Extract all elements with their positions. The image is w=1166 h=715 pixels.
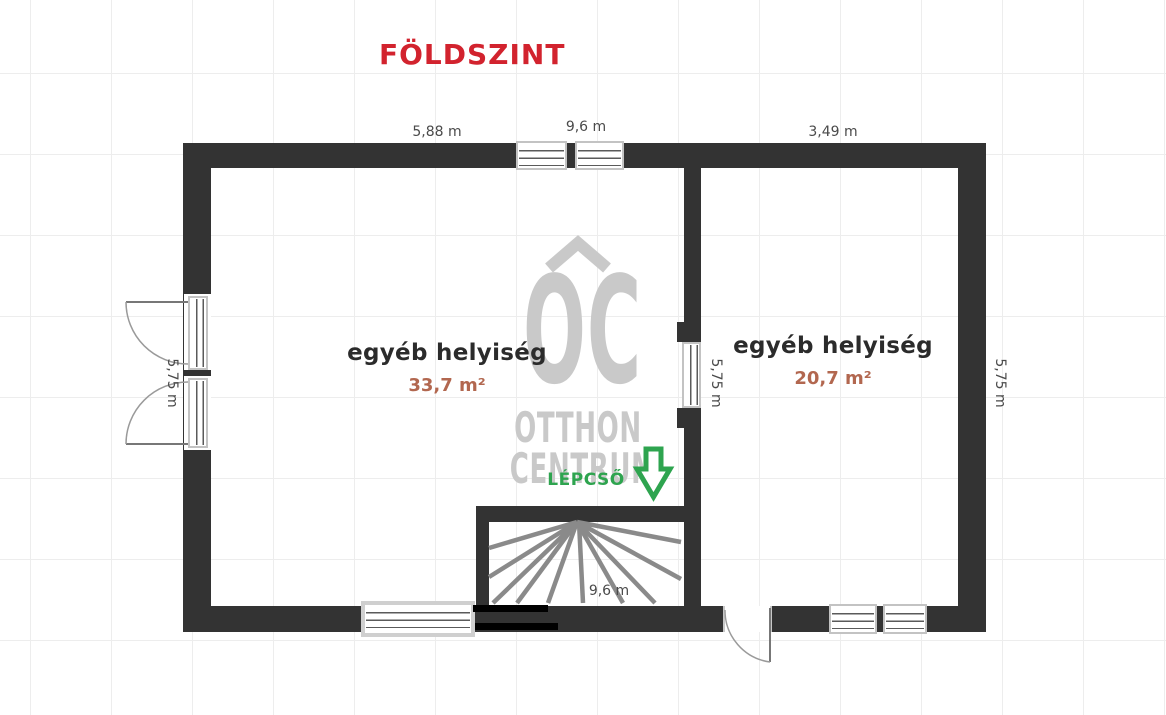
room-label-left: egyéb helyiség 33,7 m²: [337, 340, 557, 396]
dimension-middle-height: 5,75 m: [708, 348, 724, 418]
bottom-door-opening: [723, 606, 772, 632]
middle-window-jamb-bottom: [677, 408, 701, 428]
dimension-right-height: 5,75 m: [992, 348, 1008, 418]
window-top-2: [575, 141, 624, 170]
page-title: FÖLDSZINT: [379, 38, 565, 71]
room-name: egyéb helyiség: [337, 340, 557, 366]
dimension-left-height: 5,75 m: [164, 348, 180, 418]
stairs-label: LÉPCSŐ: [546, 470, 626, 490]
window-pane: [191, 299, 205, 367]
dimension-stairs-width: 9,6 m: [569, 583, 649, 599]
left-door-sidelite-1: [188, 296, 208, 370]
window-bottom-left: [361, 601, 475, 637]
dimension-top-left: 5,88 m: [397, 124, 477, 140]
window-middle-wall: [682, 342, 701, 408]
window-bottom-right-1: [829, 604, 877, 634]
stair-threshold-bar-2: [475, 623, 558, 630]
stairs-wall-left: [476, 506, 489, 606]
floor-plan-canvas: FÖLDSZINT OC OTTHON CENTRUM: [0, 0, 1166, 715]
middle-window-jamb-top: [677, 322, 701, 342]
room-area: 33,7 m²: [337, 375, 557, 396]
stair-threshold-bar-1: [473, 605, 548, 612]
window-pane: [366, 606, 470, 632]
window-bottom-right-2: [883, 604, 927, 634]
window-pane: [832, 607, 874, 631]
stairs-wall-top: [476, 506, 684, 522]
room-area: 20,7 m²: [723, 368, 943, 389]
window-pane: [685, 345, 698, 405]
left-door-mullion: [184, 370, 211, 376]
window-pane: [191, 381, 205, 445]
window-pane: [886, 607, 924, 631]
window-top-1: [516, 141, 567, 170]
room-name: egyéb helyiség: [723, 333, 943, 359]
wall-right: [958, 143, 986, 632]
room-label-right: egyéb helyiség 20,7 m²: [723, 333, 943, 389]
window-pane: [578, 144, 621, 167]
window-pane: [519, 144, 564, 167]
left-door-sidelite-2: [188, 378, 208, 448]
dimension-top-right: 3,49 m: [793, 124, 873, 140]
dimension-top-center: 9,6 m: [546, 119, 626, 135]
